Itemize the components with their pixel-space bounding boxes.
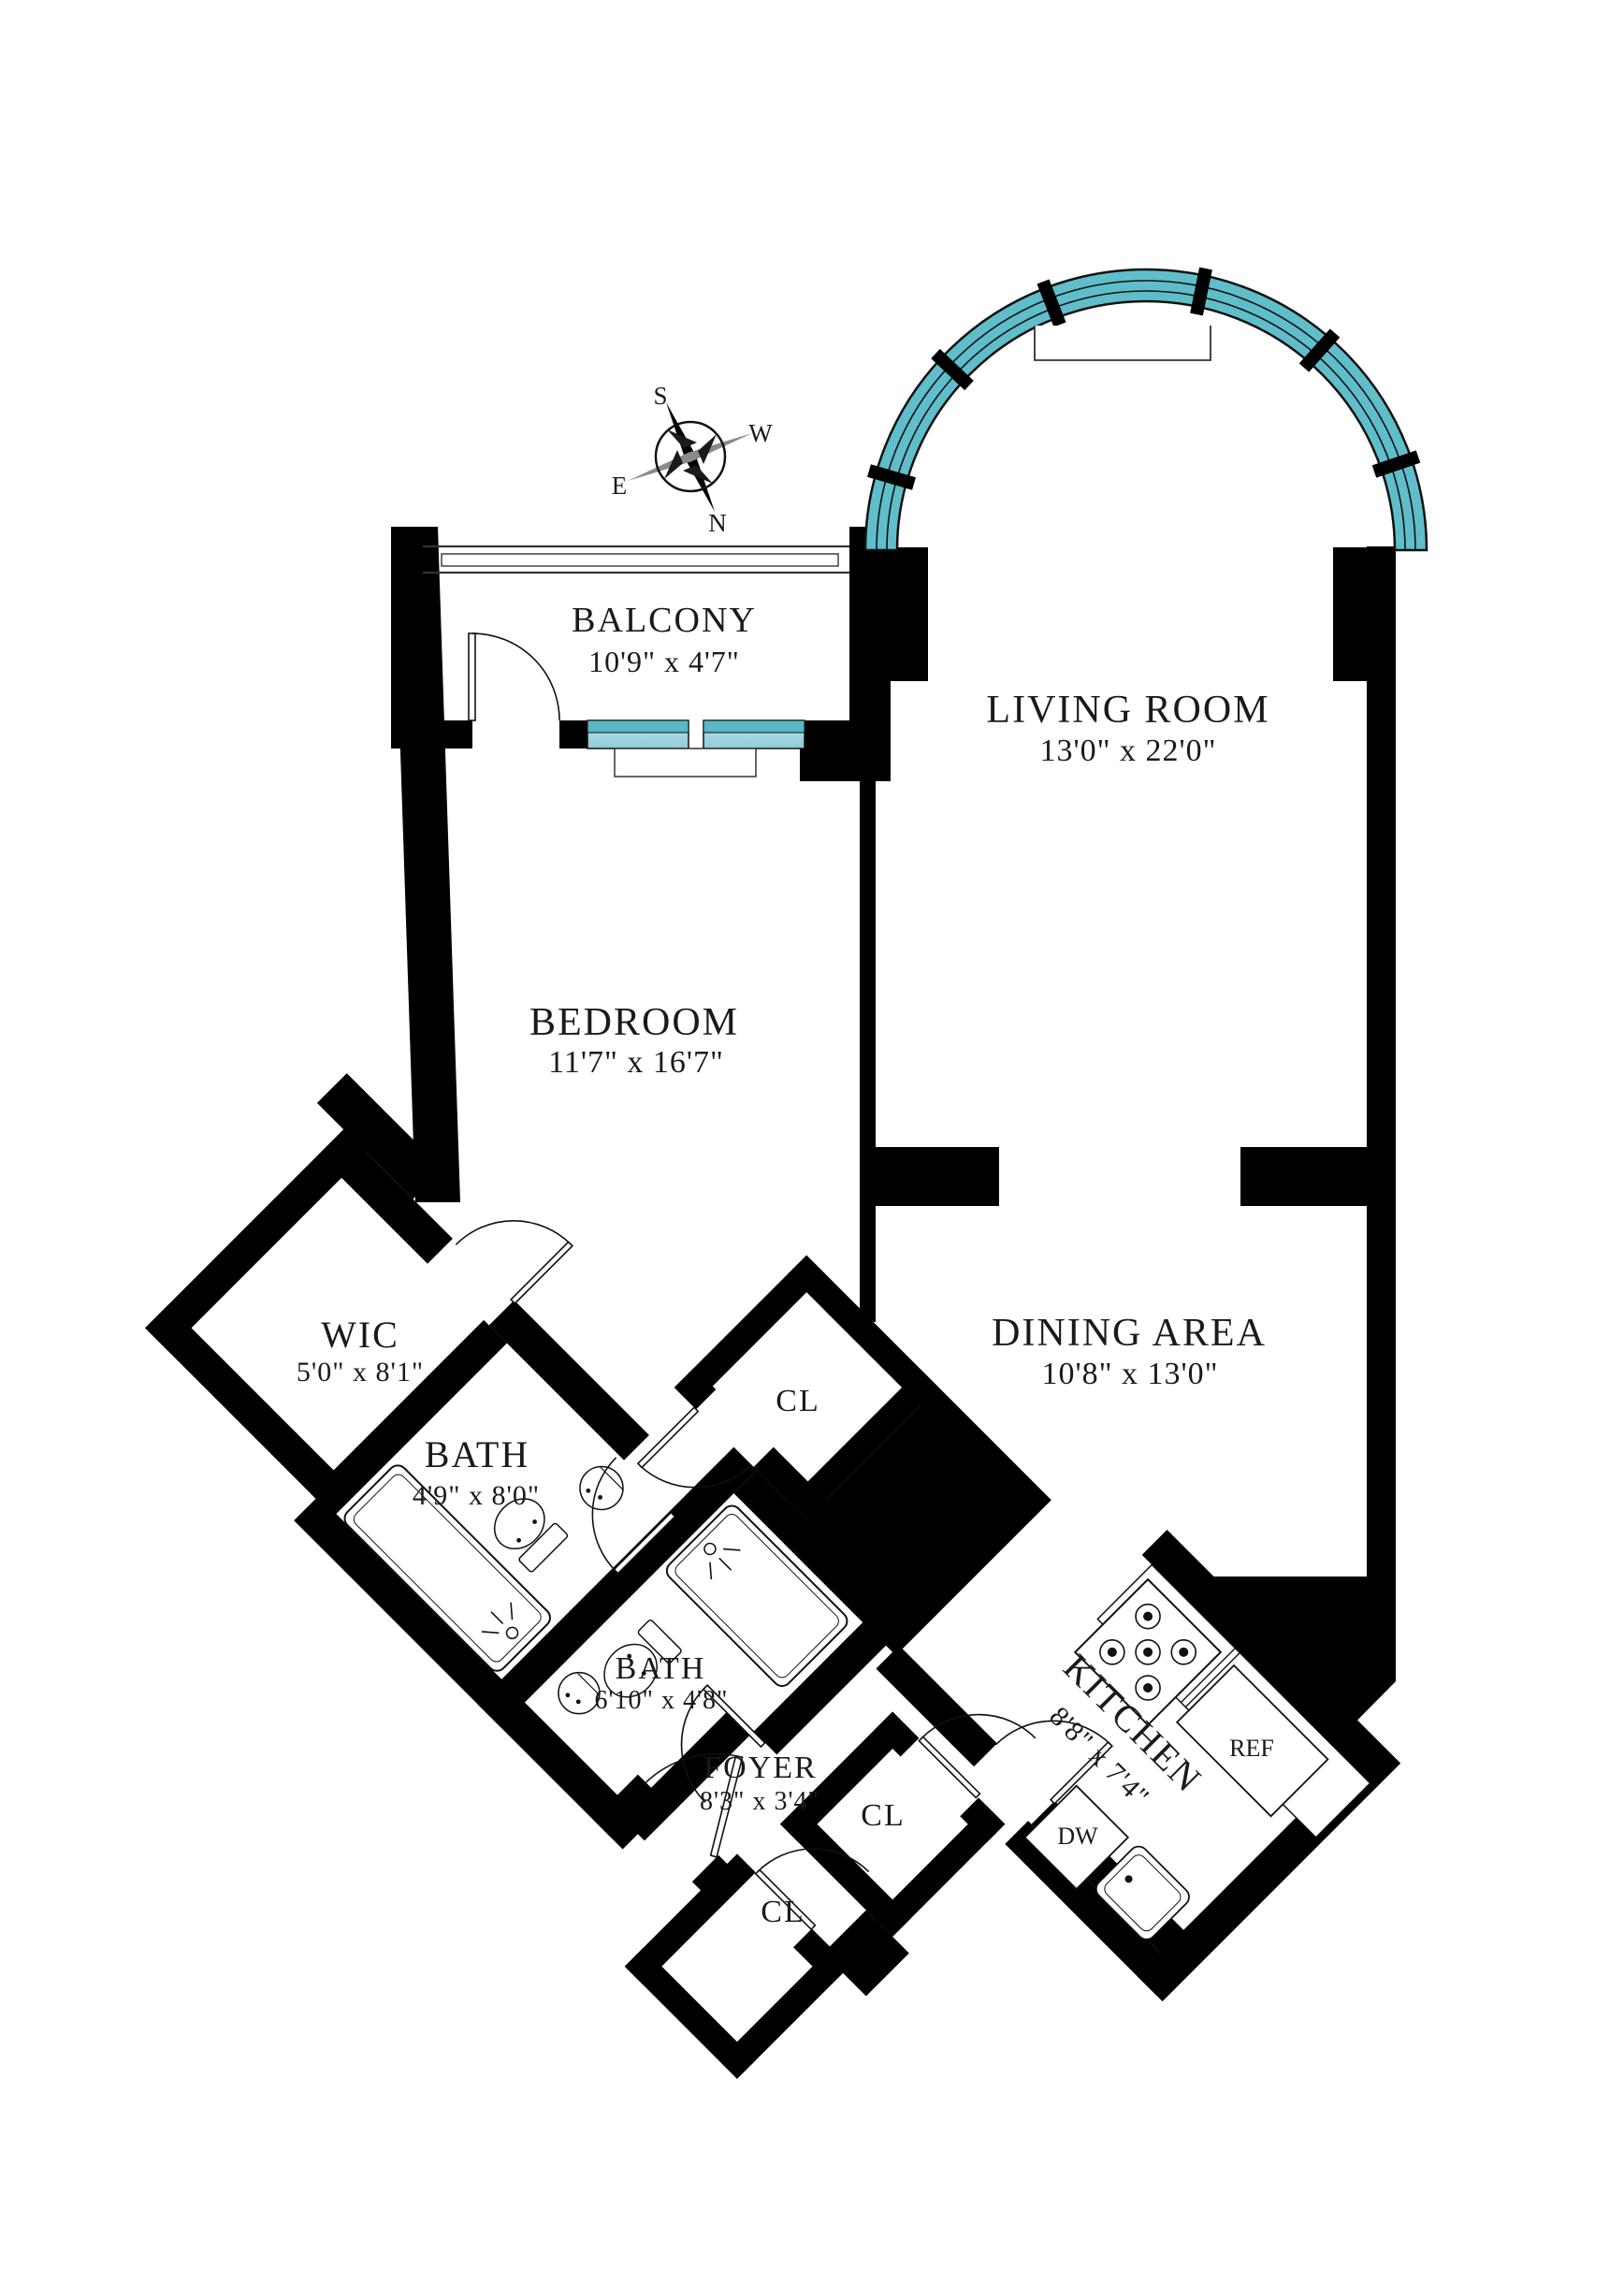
balcony-railing [442,554,838,566]
bay-window [865,269,1427,550]
compass-e: E [612,472,628,500]
bath1-label: BATH [425,1433,529,1475]
closet3-label: CL [761,1895,805,1929]
foyer-dims: 8'3" x 3'4" [700,1787,819,1816]
diagonal-wing [39,892,1402,2255]
floor-plan: S W E N BALCONY 10'9" x 4'7" LIVING ROOM… [0,0,1624,2296]
dishwasher-label: DW [1057,1823,1098,1850]
balcony-label: BALCONY [572,601,757,640]
window-sill [615,748,756,777]
closet2-label: CL [861,1798,905,1833]
bath2-label: BATH [616,1651,706,1686]
bath1-dims: 4'9" x 8'0" [413,1480,540,1511]
balcony-dims: 10'9" x 4'7" [588,645,740,678]
compass-w: W [748,419,773,447]
dining-area-dims: 10'8" x 13'0" [1041,1357,1218,1391]
balcony-door [469,633,559,720]
closet1-label: CL [776,1384,819,1418]
bedroom-label: BEDROOM [529,1001,739,1044]
compass-rose: S W E N [612,382,774,537]
bath2-dims: 6'10" x 4'8" [595,1686,729,1715]
refrigerator-label: REF [1229,1735,1274,1762]
living-room-label: LIVING ROOM [986,689,1269,732]
bedroom-dims: 11'7" x 16'7" [548,1045,724,1080]
wic-label: WIC [321,1314,399,1356]
compass-n: N [708,509,727,537]
wic-dims: 5'0" x 8'1" [297,1357,424,1388]
floor-plan-page: S W E N BALCONY 10'9" x 4'7" LIVING ROOM… [0,0,1624,2296]
dining-area-label: DINING AREA [992,1312,1267,1355]
balcony-windows [587,720,805,748]
compass-s: S [653,382,667,410]
bay-sill [1035,326,1211,360]
living-room-dims: 13'0" x 22'0" [1039,734,1216,768]
foyer-label: FOYER [703,1751,817,1785]
